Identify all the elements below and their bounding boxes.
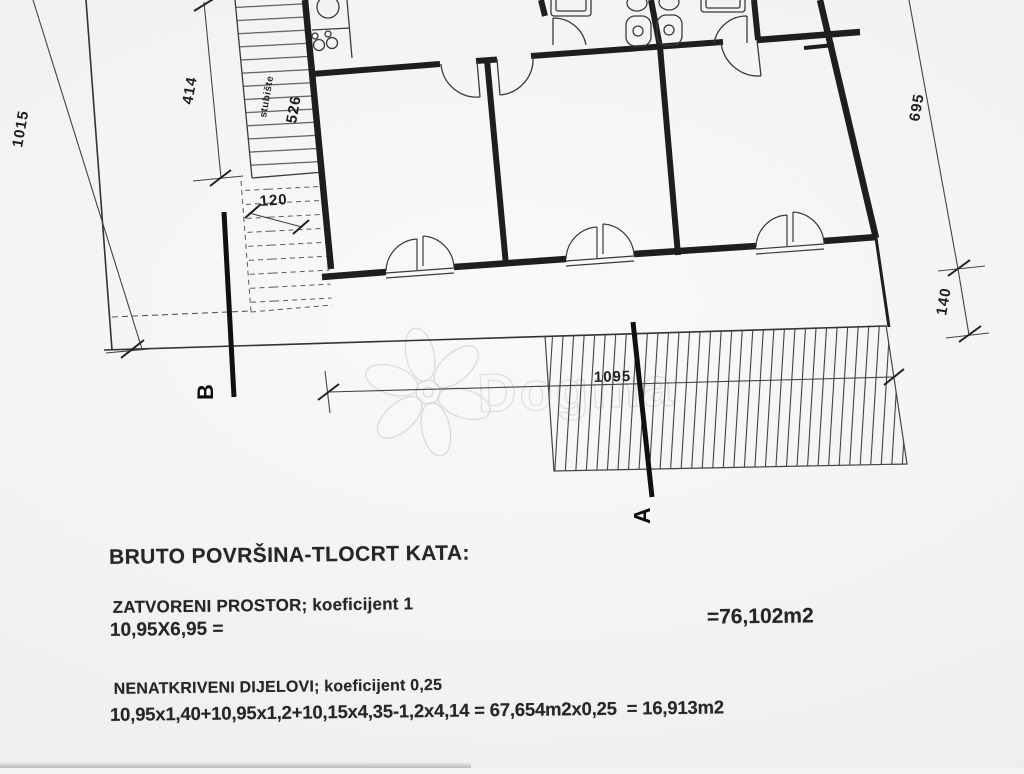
calc-title: BRUTO POVRŠINA-TLOCRT KATA:: [109, 542, 470, 570]
scan-edge-shadow: [0, 762, 471, 768]
uncovered-parts-formula: 10,95x1,40+10,95x1,2+10,15x4,35-1,2x4,14…: [110, 696, 724, 725]
area-calculation-block: BRUTO POVRŠINA-TLOCRT KATA: ZATVORENI PR…: [0, 0, 1024, 774]
closed-space-label: ZATVORENI PROSTOR; koeficijent 1: [113, 594, 414, 618]
scanned-floor-plan-page: Dogma stubište 526: [0, 0, 1024, 768]
closed-space-formula: 10,95X6,95 =: [110, 619, 224, 642]
closed-space-result: =76,102m2: [707, 604, 814, 629]
uncovered-parts-label: NENATKRIVENI DIJELOVI; koeficijent 0,25: [114, 677, 443, 699]
